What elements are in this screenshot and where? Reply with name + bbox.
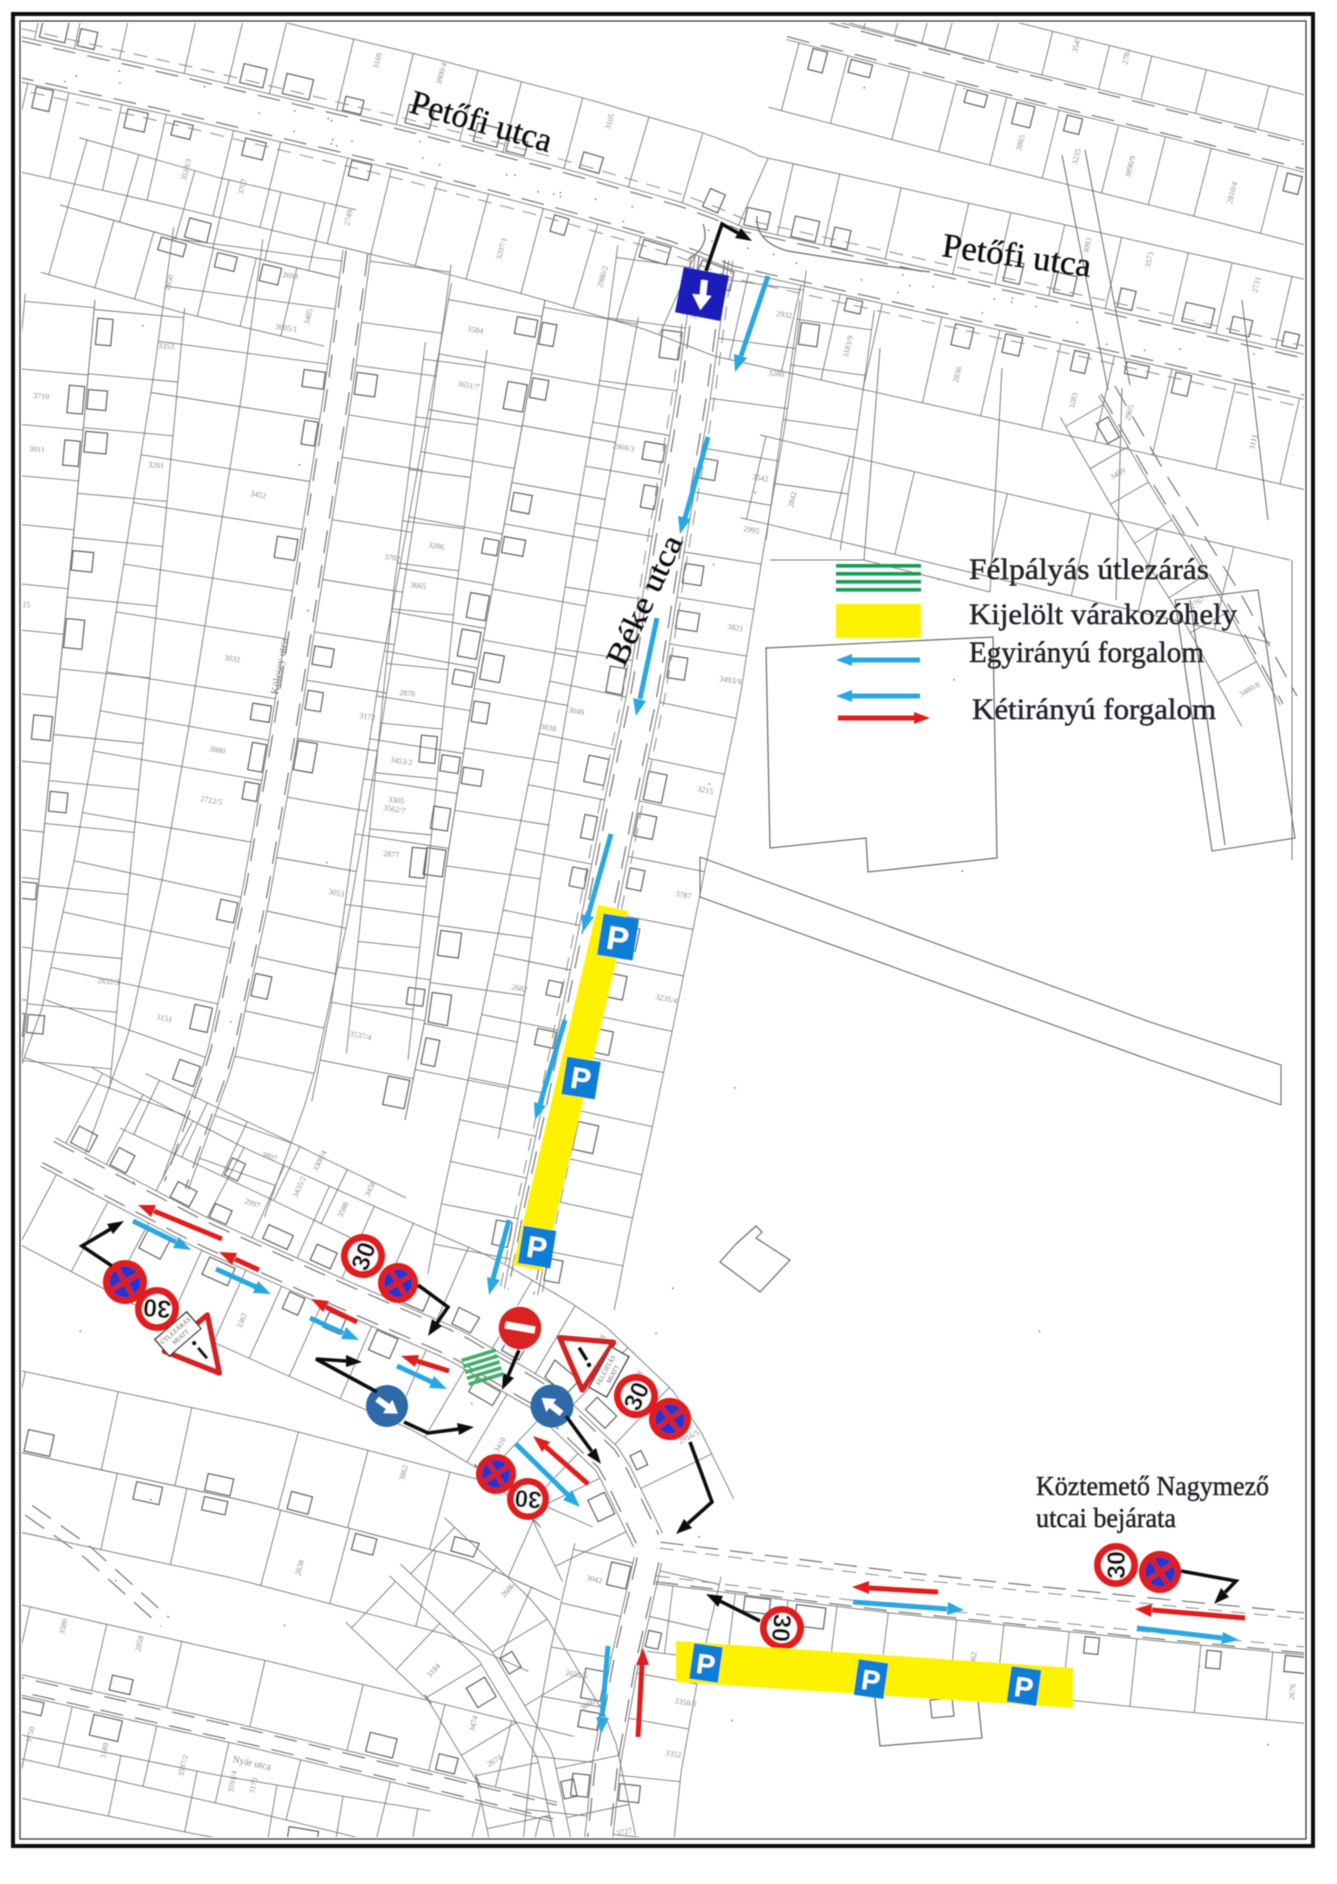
svg-text:3353: 3353 bbox=[158, 341, 175, 351]
svg-text:2877: 2877 bbox=[383, 849, 400, 860]
svg-text:utcai bejárata: utcai bejárata bbox=[1036, 1503, 1176, 1533]
svg-text:Köztemető Nagymező: Köztemető Nagymező bbox=[1036, 1471, 1269, 1501]
svg-text:Kijelölt várakozóhely: Kijelölt várakozóhely bbox=[969, 598, 1237, 631]
svg-text:Egyirányú forgalom: Egyirányú forgalom bbox=[969, 636, 1204, 669]
svg-text:30: 30 bbox=[142, 1293, 172, 1323]
svg-text:2676: 2676 bbox=[1287, 1683, 1298, 1700]
svg-text:Kétirányú forgalom: Kétirányú forgalom bbox=[972, 693, 1216, 726]
svg-text:3305: 3305 bbox=[388, 795, 405, 806]
svg-text:30: 30 bbox=[1103, 1551, 1131, 1579]
svg-text:Félpályás útlezárás: Félpályás útlezárás bbox=[969, 553, 1209, 586]
svg-text:30: 30 bbox=[766, 1613, 796, 1643]
svg-text:30: 30 bbox=[514, 1484, 543, 1513]
svg-text:3201: 3201 bbox=[148, 460, 165, 470]
svg-text:2870: 2870 bbox=[399, 688, 416, 699]
svg-text:3710: 3710 bbox=[33, 391, 50, 401]
svg-text:3011: 3011 bbox=[29, 444, 45, 454]
